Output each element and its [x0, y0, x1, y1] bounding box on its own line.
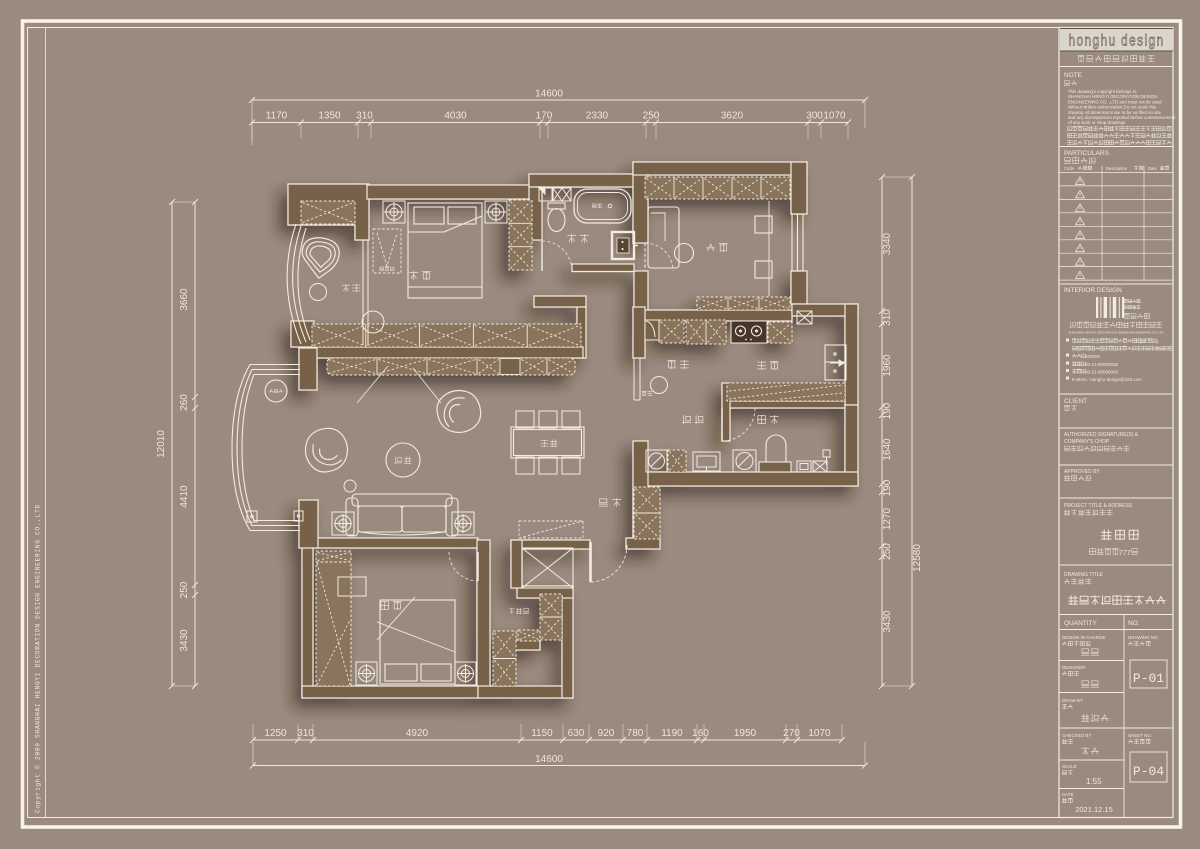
- svg-text:Code: Code: [1064, 166, 1075, 171]
- svg-text:P-04: P-04: [1133, 764, 1164, 779]
- svg-text:DESIGN IN CHARGE: DESIGN IN CHARGE: [1062, 635, 1106, 640]
- svg-text:DRAWING NO.: DRAWING NO.: [1128, 635, 1159, 640]
- svg-text:1640: 1640: [882, 438, 893, 461]
- svg-text:CLIENT: CLIENT: [1064, 398, 1087, 405]
- svg-text:of any work or shop drawings.: of any work or shop drawings.: [1068, 120, 1126, 125]
- svg-text:SHANGHAI HENGYI DECORATION DES: SHANGHAI HENGYI DECORATION DESIGN ENGINE…: [1068, 331, 1164, 335]
- svg-text:1270: 1270: [882, 507, 893, 530]
- svg-text:1170: 1170: [266, 111, 288, 122]
- svg-text:INTERIOR DESIGN: INTERIOR DESIGN: [1064, 287, 1122, 294]
- svg-text:200050: 200050: [1085, 354, 1101, 359]
- svg-text:780: 780: [627, 728, 644, 739]
- svg-text:DATE: DATE: [1062, 792, 1074, 797]
- svg-text:777: 777: [1119, 550, 1131, 557]
- svg-text:260: 260: [179, 394, 190, 411]
- svg-text:1250: 1250: [264, 728, 287, 739]
- svg-text:310: 310: [297, 728, 314, 739]
- svg-text:3660: 3660: [179, 288, 190, 311]
- svg-text:250: 250: [179, 581, 190, 598]
- svg-text:3340: 3340: [882, 232, 893, 255]
- svg-text:PROJECT TITLE & ADDRESS: PROJECT TITLE & ADDRESS: [1064, 503, 1133, 509]
- svg-text:NO.: NO.: [1128, 620, 1140, 627]
- svg-text:1950: 1950: [734, 728, 757, 739]
- svg-text:2330: 2330: [586, 111, 609, 122]
- svg-text:DRAW BY: DRAW BY: [1062, 698, 1083, 703]
- svg-text:1:55: 1:55: [1086, 777, 1102, 786]
- svg-text:CHECKED BY: CHECKED BY: [1062, 733, 1091, 738]
- svg-text:1350: 1350: [318, 111, 341, 122]
- svg-text:Date: Date: [1148, 166, 1158, 171]
- svg-text:630: 630: [568, 728, 585, 739]
- svg-text:1190: 1190: [661, 728, 683, 739]
- svg-text:190: 190: [882, 479, 893, 496]
- svg-text:AUTHORIZED SIGNATURE(S) &: AUTHORIZED SIGNATURE(S) &: [1064, 432, 1139, 438]
- svg-text:4410: 4410: [179, 485, 190, 508]
- svg-text:170: 170: [536, 111, 553, 122]
- svg-text:190: 190: [882, 402, 893, 419]
- svg-text:250: 250: [643, 111, 660, 122]
- svg-text:14600: 14600: [535, 754, 563, 765]
- svg-text:270: 270: [783, 728, 800, 739]
- svg-text:E-MAIL: Honghu-design@163.com: E-MAIL: Honghu-design@163.com: [1072, 377, 1142, 382]
- svg-text:DESIGNER: DESIGNER: [1062, 665, 1086, 670]
- svg-text:300: 300: [806, 111, 823, 122]
- svg-text:DRAWING TITLE: DRAWING TITLE: [1064, 572, 1104, 578]
- svg-text:SHEET NO.: SHEET NO.: [1128, 733, 1152, 738]
- svg-text:12580: 12580: [912, 544, 923, 572]
- svg-text:310: 310: [356, 111, 373, 122]
- svg-text:Description: Description: [1106, 166, 1128, 171]
- svg-text:Copyright © 2009 SHANGHAI: Copyright © 2009 SHANGHAI HENGYI DECORAT…: [35, 504, 42, 813]
- svg-text:1960: 1960: [882, 354, 893, 377]
- svg-text:14600: 14600: [535, 89, 563, 100]
- svg-text:4920: 4920: [406, 728, 429, 739]
- svg-text:920: 920: [598, 728, 615, 739]
- svg-text:honghu design: honghu design: [1069, 33, 1165, 50]
- svg-text:COMPANY'S CHOP: COMPANY'S CHOP: [1064, 439, 1110, 445]
- svg-text:3620: 3620: [721, 111, 744, 122]
- svg-text:2021.12.15: 2021.12.15: [1075, 805, 1113, 814]
- svg-text:160: 160: [692, 728, 709, 739]
- svg-text:3430: 3430: [882, 610, 893, 633]
- svg-text:NOTE: NOTE: [1064, 72, 1083, 79]
- svg-text:P-01: P-01: [1133, 671, 1164, 686]
- svg-text:PARTICULARS: PARTICULARS: [1064, 150, 1110, 157]
- svg-text:3430: 3430: [179, 629, 190, 652]
- svg-text:12010: 12010: [156, 430, 167, 458]
- svg-text:SCALE: SCALE: [1062, 764, 1077, 769]
- svg-text:1070: 1070: [808, 728, 831, 739]
- svg-text:250: 250: [882, 543, 893, 560]
- svg-text:QUANTITY: QUANTITY: [1064, 620, 1098, 627]
- svg-text:00-21-50000038: 00-21-50000038: [1085, 362, 1119, 367]
- svg-text:00-21-00000000: 00-21-00000000: [1085, 370, 1119, 375]
- svg-text:1150: 1150: [531, 728, 553, 739]
- svg-text:1070: 1070: [823, 111, 846, 122]
- svg-text:APPROVED BY: APPROVED BY: [1064, 469, 1101, 475]
- svg-text:4030: 4030: [444, 111, 467, 122]
- svg-text:310: 310: [882, 309, 893, 326]
